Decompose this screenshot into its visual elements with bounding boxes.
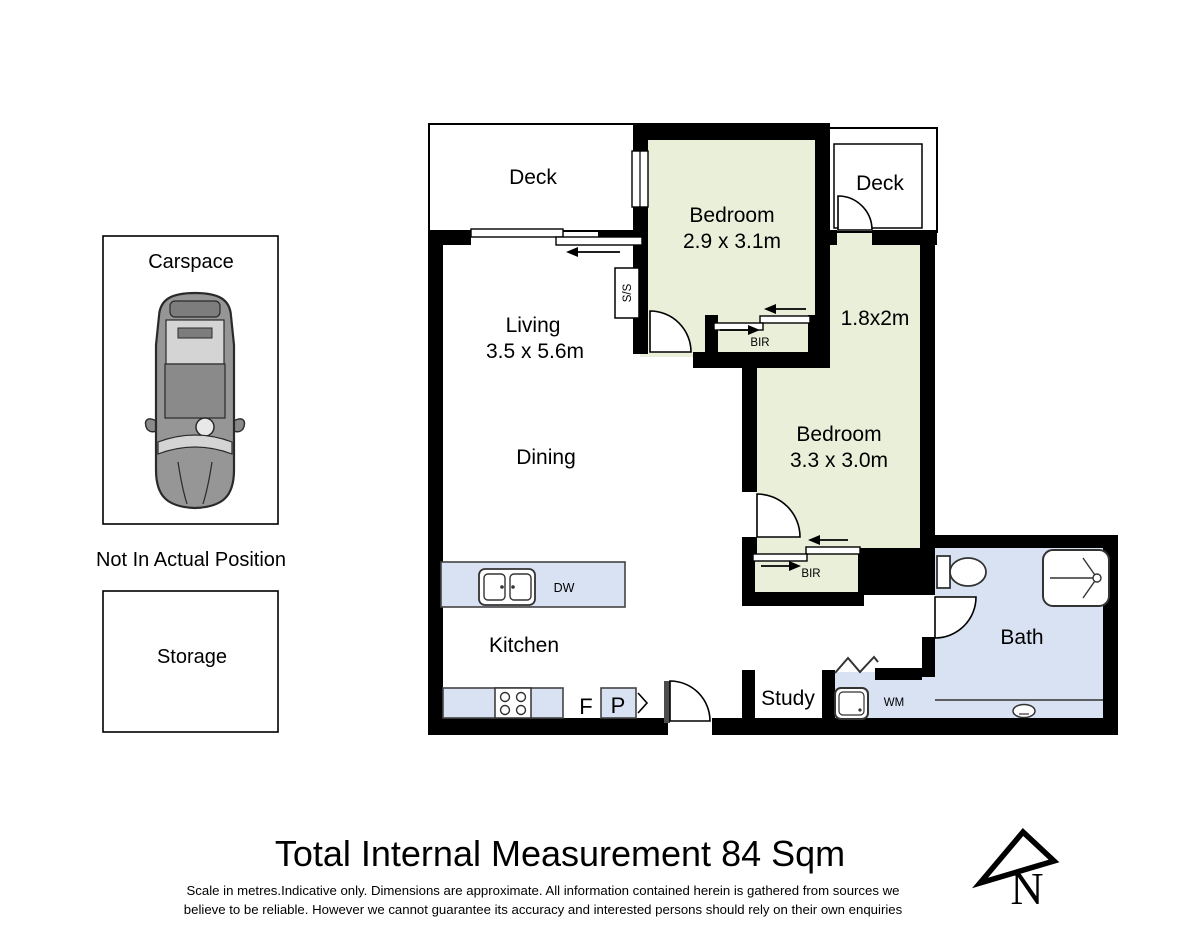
room-label-bedroom1: Bedroom: [689, 204, 774, 227]
fixture-label-fridge: F: [579, 694, 592, 719]
toilet-cistern: [937, 556, 950, 588]
disclaimer-line-2: believe to be reliable. However we canno…: [184, 902, 903, 917]
wall-segment: [922, 548, 935, 595]
floor-plan-svg: N Deck Deck Bedroom 2.9 x 3.1m 1.8x2m Li…: [0, 0, 1199, 938]
stove-cooktop: [495, 688, 531, 718]
car-top-view-illustration: [145, 293, 244, 508]
sink-dot: [511, 585, 515, 589]
wall-segment: [712, 718, 1118, 735]
wall-segment: [920, 535, 1118, 548]
room-label-bath: Bath: [1000, 626, 1043, 649]
room-dims-living: 3.5 x 5.6m: [486, 340, 584, 363]
wall-segment: [633, 123, 830, 140]
wall-segment: [922, 637, 935, 677]
entry-door-jamb: [664, 681, 670, 723]
not-in-position-note: Not In Actual Position: [96, 549, 286, 571]
room-label-deck-right: Deck: [856, 172, 904, 195]
storage-label: Storage: [157, 646, 227, 668]
fixture-label-bir1: BIR: [750, 337, 769, 349]
car-roof-panel: [166, 320, 224, 364]
room-dims-bedroom1: 2.9 x 3.1m: [683, 230, 781, 253]
fixture-label-bir2: BIR: [801, 568, 820, 580]
carspace-block: [103, 236, 278, 524]
wall-segment: [808, 315, 830, 352]
fixture-label-wm: WM: [884, 697, 904, 709]
disclaimer-line-1: Scale in metres.Indicative only. Dimensi…: [187, 883, 900, 898]
bir1-slat: [760, 316, 810, 323]
wall-segment: [875, 668, 922, 680]
north-arrow: N: [980, 832, 1054, 914]
floor-plan-page: N Deck Deck Bedroom 2.9 x 3.1m 1.8x2m Li…: [0, 0, 1199, 938]
wall-segment: [820, 230, 837, 245]
north-label: N: [1010, 863, 1043, 914]
wall-segment: [633, 140, 648, 152]
bir2-slat: [806, 547, 860, 554]
wall-segment: [705, 315, 718, 352]
shower-drain: [1093, 574, 1101, 582]
wall-segment: [815, 123, 830, 235]
wall-segment: [742, 670, 755, 725]
fixture-label-dw: DW: [554, 581, 575, 595]
wall-segment: [428, 718, 668, 735]
sliding-door-panel: [556, 237, 642, 245]
sliding-door-panel: [471, 229, 563, 237]
room-dims-bedroom2: 3.3 x 3.0m: [790, 449, 888, 472]
room-dims-nook: 1.8x2m: [841, 307, 910, 330]
car-windshield: [165, 364, 225, 418]
vanity-basin: [1013, 705, 1035, 718]
car-rear-glass: [170, 301, 220, 317]
slide-arrowhead: [566, 247, 578, 257]
wall-segment: [742, 537, 757, 555]
wall-segment: [428, 230, 443, 735]
car-steering-wheel: [196, 418, 214, 436]
bir2-slat: [753, 554, 807, 561]
wall-segment: [742, 352, 757, 492]
wall-segment: [822, 670, 835, 725]
fixture-label-ss: S/S: [622, 283, 634, 302]
zigzag-opening-marker: [835, 657, 878, 673]
fixture-label-pantry: P: [611, 693, 626, 718]
room-label-kitchen: Kitchen: [489, 634, 559, 657]
laundry-fixtures: [835, 688, 868, 719]
room-label-dining: Dining: [516, 446, 576, 469]
wall-segment: [858, 548, 922, 595]
car-sunroof-slot: [178, 328, 212, 338]
entry-door: [670, 681, 710, 721]
toilet-bowl: [950, 558, 986, 586]
wall-segment: [815, 235, 830, 318]
wall-segment: [633, 206, 648, 234]
room-label-study: Study: [761, 687, 815, 710]
wall-segment: [742, 592, 864, 606]
wall-segment: [920, 232, 935, 535]
room-label-bedroom2: Bedroom: [796, 423, 881, 446]
room-label-living: Living: [506, 314, 561, 337]
sink-dot: [500, 585, 504, 589]
page-title: Total Internal Measurement 84 Sqm: [275, 833, 845, 874]
carspace-label: Carspace: [148, 251, 234, 273]
room-label-deck-left: Deck: [509, 166, 557, 189]
pantry-chevron: [638, 693, 647, 713]
wall-segment: [693, 352, 830, 368]
trough-dot: [858, 708, 861, 711]
